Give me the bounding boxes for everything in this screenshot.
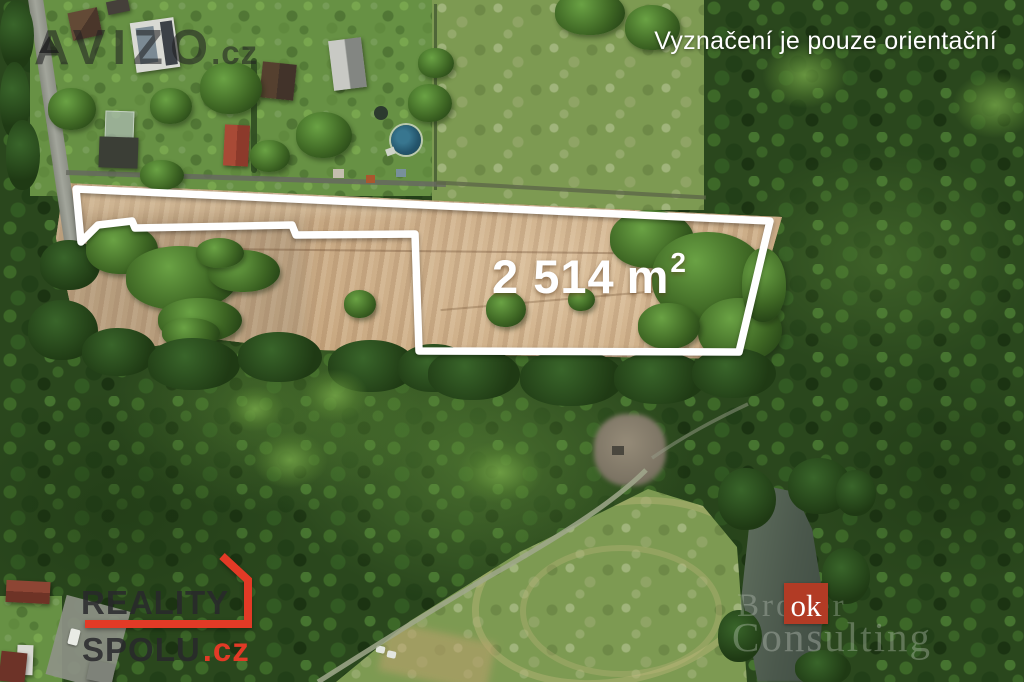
reality-spolu-tld: .cz: [203, 631, 250, 668]
area-value: 2 514: [492, 250, 615, 303]
reality-spolu-line2: SPOLU.cz: [82, 631, 250, 669]
broker-watermark-line2: Consulting: [732, 613, 932, 661]
spolu-text: SPOLU: [82, 631, 201, 668]
disclaimer-text: Vyznačení je pouze orientační: [654, 27, 997, 56]
plot-area-label: 2 514m2: [492, 249, 687, 304]
area-unit: m: [627, 250, 670, 303]
avizo-tld: .cz: [211, 34, 258, 71]
triangle-icon: [39, 36, 59, 53]
reality-spolu-line1: REALITY: [81, 584, 229, 622]
avizo-wordmark: AVIZO: [34, 21, 215, 75]
area-exponent: 2: [670, 247, 687, 278]
aerial-photo: AVIZO.cz Vyznačení je pouze orientační 2…: [0, 0, 1024, 682]
broker-square-logo: ok: [784, 583, 828, 624]
broker-square-text: ok: [784, 583, 828, 629]
avizo-logo: AVIZO.cz: [34, 24, 258, 73]
plot-outline-layer: [0, 0, 1024, 682]
